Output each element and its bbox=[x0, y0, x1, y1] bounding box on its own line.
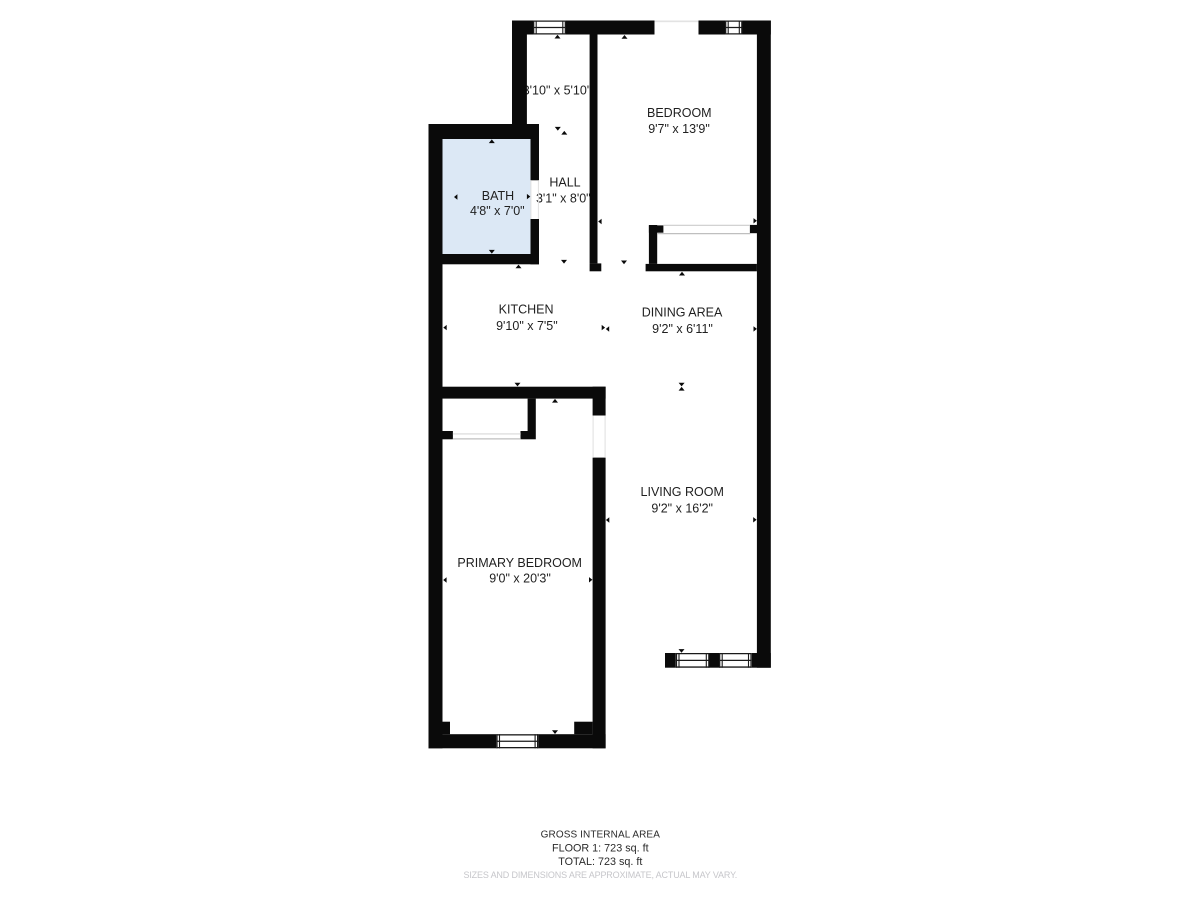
svg-text:BATH: BATH bbox=[482, 189, 514, 203]
svg-text:HALL: HALL bbox=[549, 176, 580, 190]
svg-text:3'10" x 5'10": 3'10" x 5'10" bbox=[523, 83, 592, 97]
svg-text:FLOOR 1: 723 sq. ft: FLOOR 1: 723 sq. ft bbox=[552, 843, 649, 855]
svg-text:DINING AREA: DINING AREA bbox=[642, 306, 723, 320]
svg-text:9'2" x 16'2": 9'2" x 16'2" bbox=[651, 502, 713, 516]
svg-text:PRIMARY BEDROOM: PRIMARY BEDROOM bbox=[457, 556, 582, 570]
svg-text:3'1" x 8'0": 3'1" x 8'0" bbox=[536, 191, 591, 205]
svg-text:BEDROOM: BEDROOM bbox=[647, 106, 712, 120]
svg-text:GROSS INTERNAL AREA: GROSS INTERNAL AREA bbox=[541, 830, 661, 841]
svg-text:9'10" x 7'5": 9'10" x 7'5" bbox=[496, 319, 558, 333]
svg-text:9'7" x 13'9": 9'7" x 13'9" bbox=[648, 122, 710, 136]
svg-text:LIVING ROOM: LIVING ROOM bbox=[641, 485, 724, 499]
svg-text:SIZES AND DIMENSIONS ARE APPRO: SIZES AND DIMENSIONS ARE APPROXIMATE, AC… bbox=[463, 870, 737, 880]
svg-text:TOTAL: 723 sq. ft: TOTAL: 723 sq. ft bbox=[558, 856, 642, 868]
svg-text:KITCHEN: KITCHEN bbox=[499, 303, 554, 317]
svg-text:9'0" x 20'3": 9'0" x 20'3" bbox=[489, 572, 551, 586]
svg-text:9'2" x 6'11": 9'2" x 6'11" bbox=[652, 322, 713, 336]
svg-text:4'8" x 7'0": 4'8" x 7'0" bbox=[470, 204, 525, 218]
